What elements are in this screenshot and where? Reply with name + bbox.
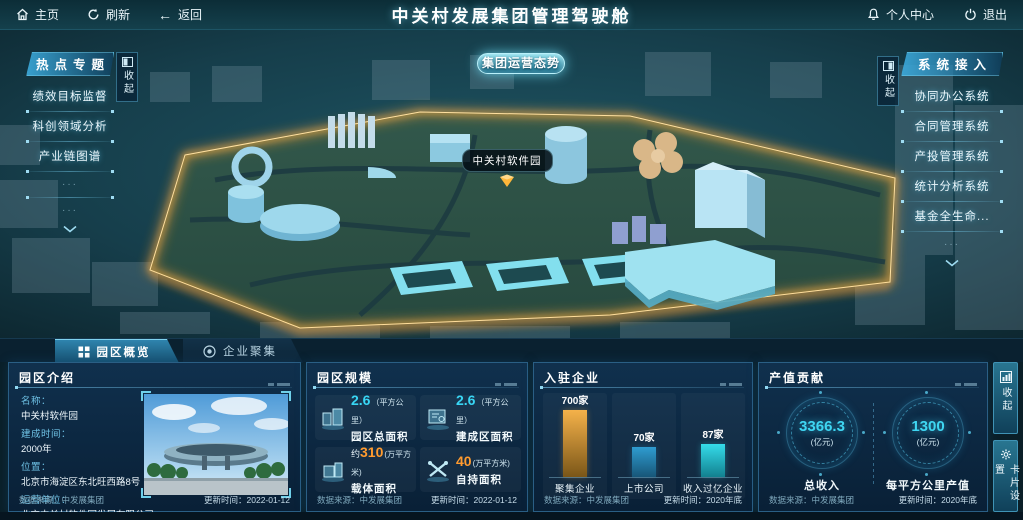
power-icon — [964, 8, 977, 21]
gauge-unit: (亿元) — [917, 436, 940, 448]
park-marker-label: 中关村软件园 — [462, 149, 553, 172]
card-settings-button[interactable]: 卡片设置 — [993, 440, 1018, 512]
divider — [542, 387, 744, 388]
bar-group: 70家 上市公司 — [612, 393, 676, 499]
update-time: 更新时间：2022-01-12 — [204, 494, 290, 506]
tab-label: 企业聚集 — [223, 343, 277, 359]
divider — [26, 197, 114, 198]
divider — [901, 231, 1003, 232]
system-access-panel: 系统接入 协同办公系统 合同管理系统 产投管理系统 统计分析系统 基金全生命..… — [901, 52, 1003, 267]
tab-label: 园区概览 — [97, 344, 151, 360]
hot-topic-more[interactable]: ··· — [26, 198, 114, 223]
buildings-icon — [320, 405, 346, 431]
hot-topic-more[interactable]: ··· — [26, 172, 114, 197]
bar-category-label: 收入过亿企业 — [681, 481, 745, 495]
personal-center-label: 个人中心 — [886, 6, 934, 23]
dashboard-root: 中关村发展集团管理驾驶舱 主页 刷新 ← 返回 个人中心 退出 — [0, 0, 1023, 520]
gauge-dot — [925, 391, 928, 394]
chevron-down-icon[interactable] — [62, 225, 78, 233]
stat-name: 自持面积 — [456, 474, 510, 486]
bar-category-label: 聚集企业 — [543, 481, 607, 495]
gauge-output-per-sqkm: 1300 (亿元) — [892, 397, 964, 469]
bottom-strip — [0, 512, 1023, 520]
enterprises-panel: 入驻企业 700家 聚集企业 70家 上市公司 87家 收入过亿企业 数据来源：… — [533, 362, 753, 512]
bar-value-label: 87家 — [681, 426, 745, 441]
hot-topic-item[interactable]: 产业链图谱 — [26, 142, 114, 171]
bar-baseline — [687, 477, 739, 478]
panel-deco — [491, 383, 517, 386]
exit-button[interactable]: 退出 — [964, 6, 1007, 23]
bottom-collapse-button[interactable]: 收起 — [993, 362, 1018, 434]
divider — [17, 387, 292, 388]
panel-deco — [951, 383, 977, 386]
collapse-label: 收起 — [998, 387, 1013, 413]
update-time: 更新时间：2020年底 — [899, 494, 977, 506]
panel-title: 园区介绍 — [19, 369, 75, 386]
stat-value: 2.6 — [351, 392, 370, 408]
chevron-down-icon[interactable] — [944, 259, 960, 267]
field-built-year: 建成时间： 2000年 — [21, 426, 151, 455]
update-time: 更新时间：2020年底 — [664, 494, 742, 506]
divider — [26, 171, 114, 172]
stat-name: 园区总面积 — [351, 431, 412, 443]
system-more[interactable]: ··· — [901, 232, 1003, 257]
stat-value: 40 — [456, 453, 472, 469]
field-label: 名称： — [21, 393, 151, 407]
park-marker[interactable]: 中关村软件园 — [461, 149, 553, 189]
crossed-tools-icon — [425, 457, 451, 483]
panel-chart-icon — [1000, 371, 1012, 383]
system-item[interactable]: 统计分析系统 — [901, 172, 1003, 201]
update-time: 更新时间：2022-01-12 — [431, 494, 517, 506]
bar-over-100m-revenue — [701, 444, 725, 477]
data-source: 数据来源：中发展集团 — [769, 494, 854, 506]
gauge-dot — [925, 473, 928, 476]
bell-icon — [867, 8, 880, 21]
field-location: 位置： 北京市海淀区东北旺西路8号 — [21, 459, 151, 488]
hot-topics-panel: 热点专题 绩效目标监督 科创领域分析 产业链图谱 ··· ··· — [26, 52, 114, 233]
stat-total-area: 2.6（平方公里） 园区总面积 — [315, 395, 416, 440]
back-button[interactable]: ← 返回 — [158, 6, 202, 23]
bar-value-label: 700家 — [543, 392, 607, 407]
divider — [315, 387, 519, 388]
stat-self-owned-area: 40(万平方米) 自持面积 — [420, 447, 521, 492]
left-collapse-button[interactable]: 收起 — [116, 52, 138, 102]
bar-gathered-enterprises — [563, 410, 587, 477]
group-operation-status-button[interactable]: 集团运营态势 — [477, 53, 565, 74]
gauge-name: 总收入 — [767, 477, 877, 493]
bar-baseline — [549, 477, 601, 478]
collapse-label: 收起 — [120, 70, 135, 96]
map-pin-icon — [498, 174, 516, 189]
park-scale-panel: 园区规模 2.6（平方公里） 园区总面积 2.6（平方公里） 建成区面积 约31… — [306, 362, 528, 512]
system-access-header[interactable]: 系统接入 — [901, 52, 1003, 76]
system-item[interactable]: 协同办公系统 — [901, 82, 1003, 111]
gauge-value: 1300 — [911, 418, 944, 435]
field-name: 名称： 中关村软件园 — [21, 393, 151, 422]
back-arrow-icon: ← — [158, 8, 172, 22]
stat-carrier-area: 约310(万平方米) 载体面积 — [315, 447, 416, 492]
stat-prefix: 约 — [351, 449, 360, 459]
gauge-dot — [819, 473, 822, 476]
output-value-panel: 产值贡献 3366.3 (亿元) 总收入 1300 (亿元) 每平方公里产值 数… — [758, 362, 988, 512]
top-bar: 中关村发展集团管理驾驶舱 主页 刷新 ← 返回 个人中心 退出 — [0, 0, 1023, 30]
target-icon — [203, 345, 216, 358]
bar-listed-companies — [632, 447, 656, 477]
tab-enterprise-cluster[interactable]: 企业聚集 — [183, 339, 303, 363]
hot-topics-header[interactable]: 热点专题 — [26, 52, 114, 76]
field-label: 建成时间： — [21, 426, 151, 440]
collapse-label: 收起 — [881, 74, 896, 100]
bar-group: 700家 聚集企业 — [543, 393, 607, 499]
right-collapse-button[interactable]: 收起 — [877, 56, 899, 106]
bar-category-label: 上市公司 — [612, 481, 676, 495]
stat-value: 2.6 — [456, 392, 475, 408]
bottom-tabs: 园区概览 企业聚集 — [0, 338, 1023, 362]
stat-value: 310 — [360, 444, 383, 460]
gauge-dot — [968, 431, 971, 434]
exit-label: 退出 — [983, 6, 1007, 23]
gauge-dot — [862, 431, 865, 434]
personal-center-button[interactable]: 个人中心 — [867, 6, 934, 23]
collapse-icon — [883, 61, 894, 71]
divider — [767, 387, 979, 388]
home-label: 主页 — [35, 6, 59, 23]
system-item[interactable]: 合同管理系统 — [901, 112, 1003, 141]
map-area: 集团运营态势 中关村软件园 热点专题 绩效目标监督 科创领域分析 产业链图谱 ·… — [0, 30, 1023, 338]
gauge-dot — [883, 431, 886, 434]
system-item[interactable]: 基金全生命... — [901, 202, 1003, 231]
stat-built-area: 2.6（平方公里） 建成区面积 — [420, 395, 521, 440]
stat-name: 建成区面积 — [456, 431, 517, 443]
panel-deco — [264, 383, 290, 386]
data-source: 数据来源：中发展集团 — [19, 494, 104, 506]
gauge-dot — [777, 431, 780, 434]
system-item[interactable]: 产投管理系统 — [901, 142, 1003, 171]
gauge-name: 每平方公里产值 — [873, 477, 983, 493]
gear-icon — [1000, 449, 1012, 460]
home-icon — [16, 8, 29, 21]
hot-topic-item[interactable]: 绩效目标监督 — [26, 82, 114, 111]
bar-baseline — [618, 477, 670, 478]
park-photo — [141, 391, 291, 498]
bar-value-label: 70家 — [612, 429, 676, 444]
factory-icon — [320, 457, 346, 483]
refresh-button[interactable]: 刷新 — [87, 6, 130, 23]
stat-unit: (万平方米) — [473, 459, 510, 468]
home-button[interactable]: 主页 — [16, 6, 59, 23]
card-settings-label: 卡片设置 — [991, 464, 1021, 511]
park-intro-panel: 园区介绍 名称： 中关村软件园 建成时间： 2000年 位置： 北京市海淀区东北… — [8, 362, 301, 512]
panel-deco — [716, 383, 742, 386]
gauge-dot — [819, 391, 822, 394]
field-value: 2000年 — [21, 441, 151, 455]
gauge-value: 3366.3 — [799, 418, 845, 435]
bar-group: 87家 收入过亿企业 — [681, 393, 745, 499]
field-label: 位置： — [21, 459, 151, 473]
tab-park-overview[interactable]: 园区概览 — [55, 339, 179, 363]
data-source: 数据来源：中发展集团 — [317, 494, 402, 506]
gauge-total-income: 3366.3 (亿元) — [786, 397, 858, 469]
refresh-label: 刷新 — [106, 6, 130, 23]
panel-title: 入驻企业 — [544, 369, 600, 386]
hot-topic-item[interactable]: 科创领域分析 — [26, 112, 114, 141]
field-value: 北京市海淀区东北旺西路8号 — [21, 474, 151, 488]
gauge-unit: (亿元) — [811, 436, 834, 448]
data-source: 数据来源：中发展集团 — [544, 494, 629, 506]
back-label: 返回 — [178, 6, 202, 23]
field-value: 中关村软件园 — [21, 408, 151, 422]
refresh-icon — [87, 8, 100, 21]
divider — [873, 403, 874, 485]
panel-title: 园区规模 — [317, 369, 373, 386]
panel-title: 产值贡献 — [769, 369, 825, 386]
grid-icon — [78, 346, 90, 358]
collapse-icon — [122, 57, 133, 67]
blueprint-icon — [425, 405, 451, 431]
park-photo-image — [144, 394, 288, 495]
